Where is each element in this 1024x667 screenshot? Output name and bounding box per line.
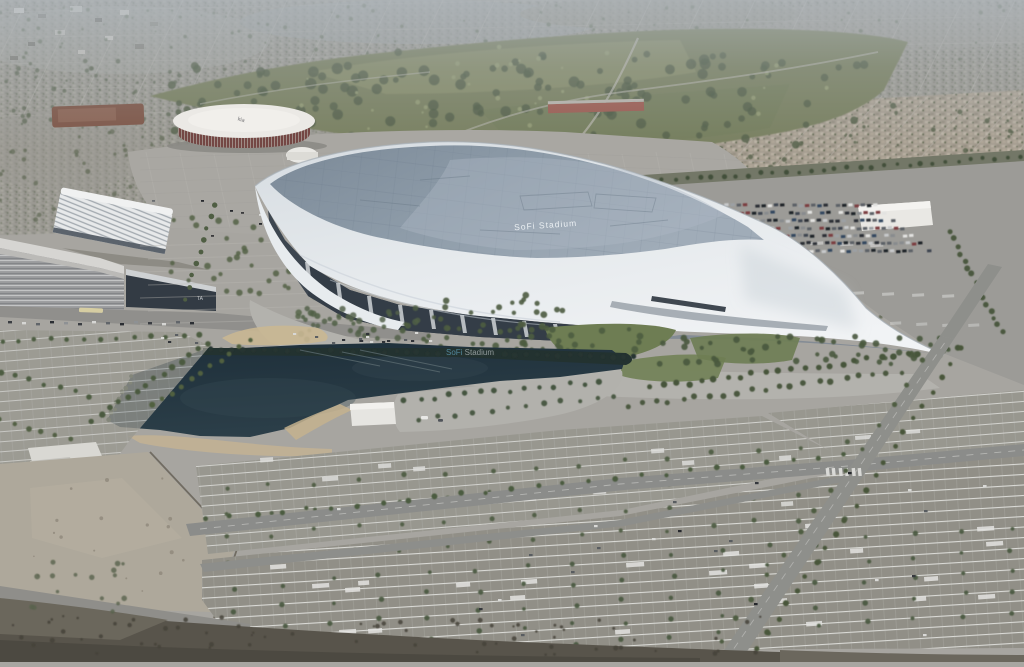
svg-text:SoFi Stadium: SoFi Stadium xyxy=(446,348,494,357)
